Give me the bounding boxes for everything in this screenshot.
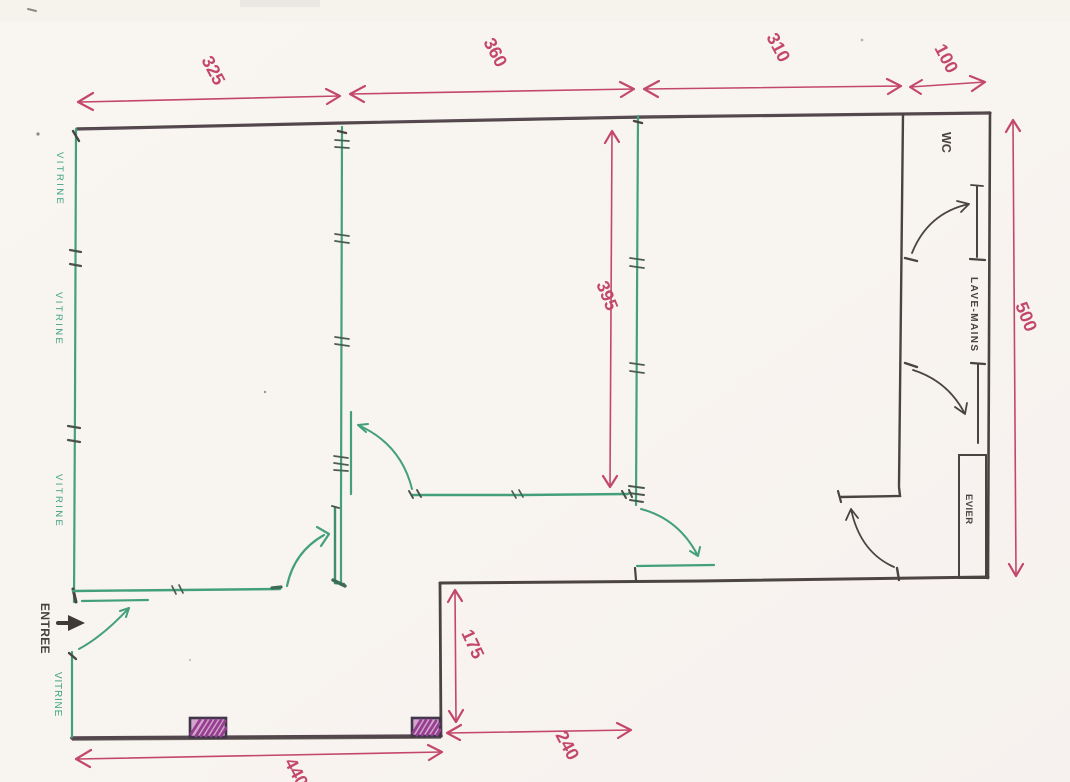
svg-text:ENTREE: ENTREE <box>38 603 52 654</box>
svg-text:EVIER: EVIER <box>963 494 974 525</box>
svg-text:VITRINE: VITRINE <box>52 672 63 717</box>
svg-text:VITRINE: VITRINE <box>54 152 65 206</box>
svg-text:WC: WC <box>939 132 953 153</box>
svg-text:LAVE-MAINS: LAVE-MAINS <box>968 277 979 352</box>
svg-text:VITRINE: VITRINE <box>53 292 64 346</box>
svg-text:VITRINE: VITRINE <box>53 474 64 528</box>
